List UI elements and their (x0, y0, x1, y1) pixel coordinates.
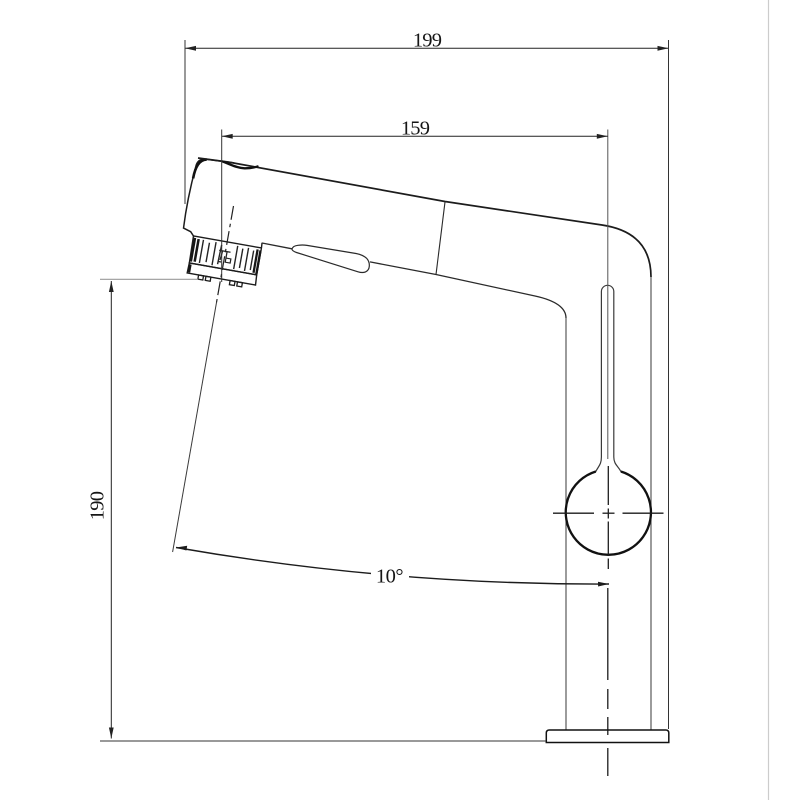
svg-text:199: 199 (413, 30, 442, 52)
svg-text:10°: 10° (376, 566, 404, 588)
svg-text:159: 159 (401, 118, 430, 140)
svg-text:190: 190 (87, 491, 109, 520)
